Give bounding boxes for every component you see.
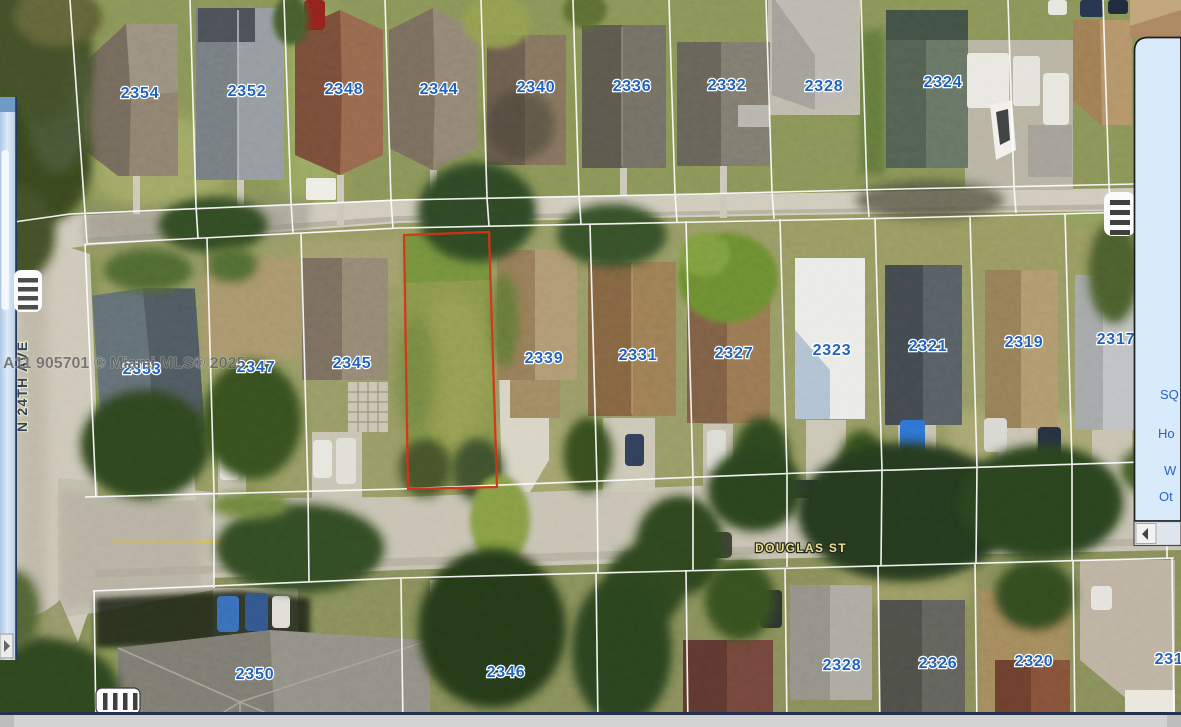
- svg-text:Ho: Ho: [1158, 426, 1175, 441]
- svg-text:A11 905701 © Miami MLS® 2025: A11 905701 © Miami MLS® 2025: [3, 355, 245, 372]
- svg-text:SQ: SQ: [1160, 387, 1179, 402]
- svg-text:Ot: Ot: [1159, 489, 1173, 504]
- svg-text:W: W: [1164, 463, 1177, 478]
